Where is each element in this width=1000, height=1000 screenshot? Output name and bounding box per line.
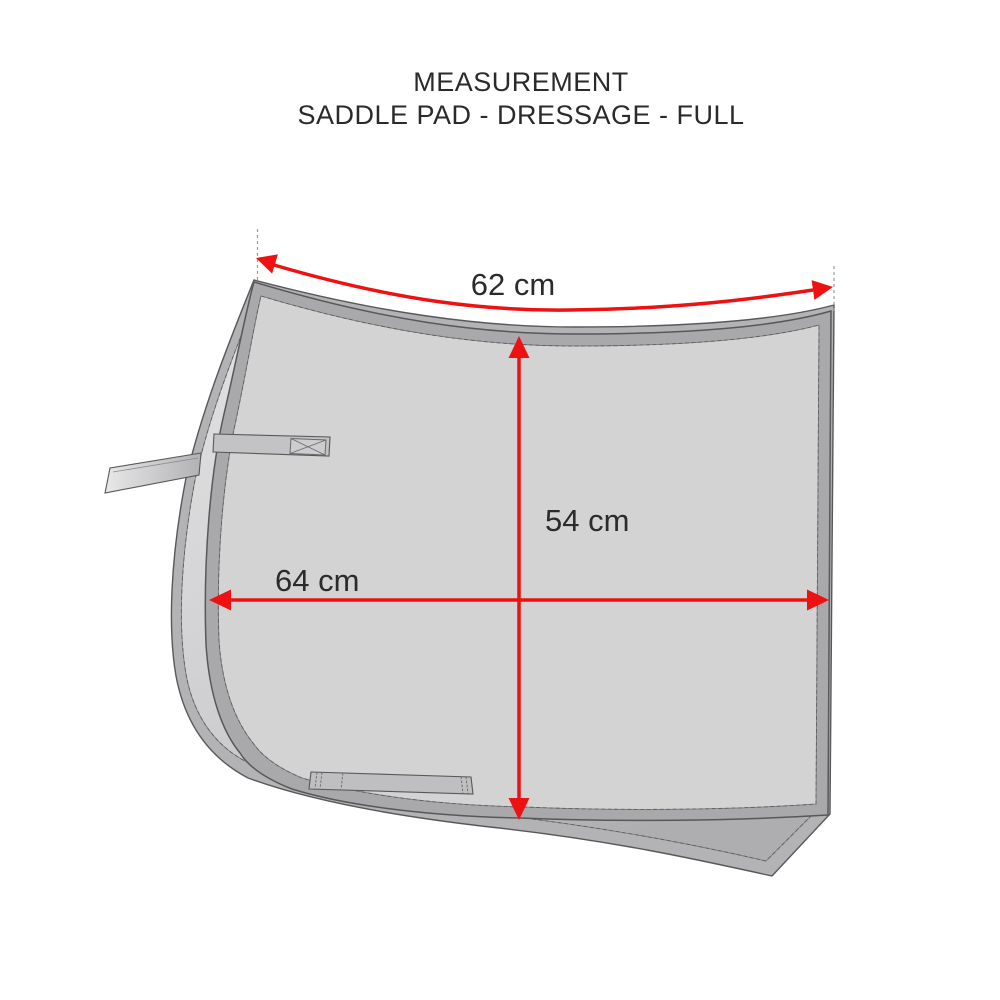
diagram-title-line2: SADDLE PAD - DRESSAGE - FULL (21, 99, 1000, 132)
diagram-title: MEASUREMENT SADDLE PAD - DRESSAGE - FULL (21, 66, 1000, 132)
diagram-title-line1: MEASUREMENT (21, 66, 1000, 99)
measurement-label-horizontal: 64 cm (275, 563, 359, 598)
measurement-label-vertical: 54 cm (545, 503, 629, 538)
measurement-diagram-page: MEASUREMENT SADDLE PAD - DRESSAGE - FULL (0, 0, 1000, 1000)
saddle-pad-diagram: 62 cm 54 cm 64 cm (0, 0, 1000, 1000)
measurement-label-top: 62 cm (471, 267, 555, 302)
